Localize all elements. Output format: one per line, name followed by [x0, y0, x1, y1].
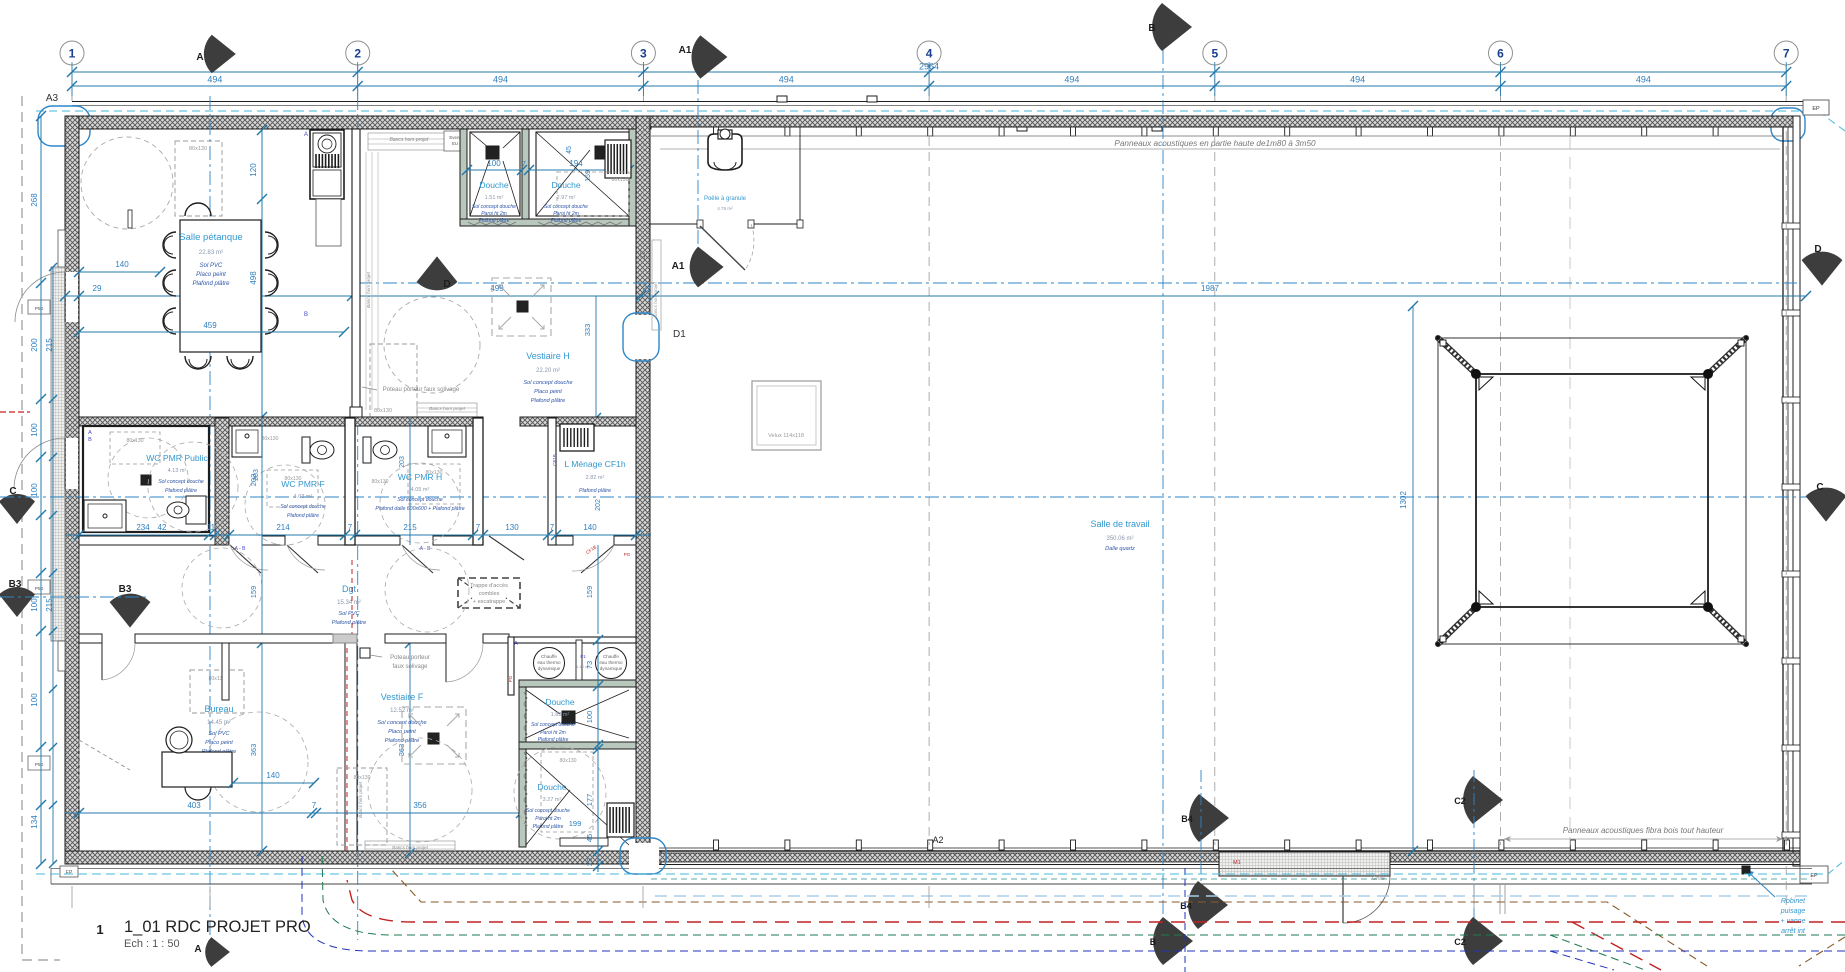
svg-text:puisage: puisage [1780, 908, 1806, 915]
svg-text:134: 134 [30, 815, 39, 829]
svg-text:EU: EU [452, 141, 458, 146]
svg-text:494: 494 [1064, 75, 1079, 85]
svg-text:Bancs hors projet: Bancs hors projet [653, 281, 658, 317]
svg-text:2.82 m²: 2.82 m² [586, 475, 605, 481]
svg-text:Poêle à granule: Poêle à granule [704, 196, 747, 202]
svg-text:45: 45 [566, 146, 573, 154]
svg-text:350.06 m²: 350.06 m² [1106, 536, 1133, 542]
svg-text:arrêt int: arrêt int [1781, 928, 1806, 935]
svg-text:3: 3 [640, 47, 647, 61]
svg-text:Douche: Douche [479, 180, 509, 190]
svg-text:1.51 m²: 1.51 m² [485, 195, 504, 201]
svg-text:EP: EP [66, 870, 73, 876]
svg-text:Chauffe: Chauffe [541, 654, 557, 659]
svg-text:494: 494 [1636, 75, 1651, 85]
svg-text:Douche: Douche [551, 180, 581, 190]
svg-text:Sol concept douche: Sol concept douche [158, 479, 204, 485]
svg-text:Plafond plâtre: Plafond plâtre [192, 281, 230, 287]
svg-text:1_01 RDC PROJET PRO: 1_01 RDC PROJET PRO [124, 918, 311, 936]
svg-text:Vestiaire H: Vestiaire H [526, 351, 570, 361]
svg-text:80x130: 80x130 [371, 479, 388, 485]
svg-text:CF1B: CF1B [552, 454, 557, 466]
svg-text:A - B: A - B [235, 546, 247, 552]
svg-text:7: 7 [312, 801, 317, 810]
svg-text:177: 177 [585, 794, 594, 807]
svg-text:Chauffe: Chauffe [603, 654, 619, 659]
svg-text:Plafond plâtre: Plafond plâtre [332, 620, 367, 626]
svg-text:A: A [88, 430, 92, 436]
svg-text:F1: F1 [580, 654, 586, 659]
svg-text:A: A [196, 52, 203, 63]
svg-text:80x130: 80x130 [374, 408, 392, 414]
svg-text:+ escatrappe: + escatrappe [473, 599, 506, 605]
svg-text:A: A [514, 641, 518, 647]
svg-text:EP: EP [1812, 106, 1820, 112]
svg-text:494: 494 [493, 75, 508, 85]
svg-text:356: 356 [413, 801, 427, 810]
svg-text:7: 7 [1783, 47, 1790, 61]
svg-text:Douche: Douche [545, 697, 575, 707]
svg-text:5: 5 [1211, 47, 1218, 61]
svg-text:4.76 m²: 4.76 m² [717, 206, 733, 211]
svg-text:140: 140 [115, 260, 129, 269]
svg-text:P50: P50 [35, 586, 44, 592]
svg-text:Placo peint: Placo peint [205, 740, 233, 746]
svg-text:498: 498 [249, 271, 258, 285]
svg-text:6: 6 [1497, 47, 1504, 61]
svg-text:29: 29 [93, 284, 102, 293]
svg-text:Sol PVC: Sol PVC [200, 263, 223, 269]
svg-text:4.05 m²: 4.05 m² [411, 487, 430, 493]
svg-text:130: 130 [505, 523, 519, 532]
svg-text:WC PMR Public: WC PMR Public [146, 453, 208, 463]
svg-text:D: D [443, 279, 450, 290]
svg-text:B: B [88, 437, 92, 443]
svg-text:PG: PG [624, 552, 631, 557]
svg-text:L Ménage CF1h: L Ménage CF1h [564, 459, 626, 469]
svg-text:140: 140 [583, 523, 597, 532]
svg-text:4.03 m²: 4.03 m² [294, 494, 313, 500]
svg-text:73: 73 [585, 661, 594, 669]
svg-text:P50: P50 [35, 306, 44, 312]
svg-text:363: 363 [249, 744, 258, 757]
svg-text:7: 7 [550, 523, 555, 532]
svg-text:Poteau porteur: Poteau porteur [390, 655, 430, 661]
svg-text:dynamique: dynamique [600, 666, 623, 671]
svg-text:194: 194 [569, 159, 583, 168]
svg-text:Sol concept douche: Sol concept douche [472, 204, 516, 210]
svg-text:combles: combles [479, 591, 500, 597]
svg-text:Bancs hors projet: Bancs hors projet [390, 137, 430, 143]
svg-text:Sol PVC: Sol PVC [208, 731, 230, 737]
svg-text:45: 45 [585, 834, 594, 842]
svg-text:2: 2 [354, 47, 361, 61]
svg-text:200: 200 [30, 338, 39, 352]
svg-text:eau thermo: eau thermo [599, 660, 623, 665]
svg-text:3.27 m²: 3.27 m² [543, 797, 562, 803]
svg-text:Placo peint: Placo peint [196, 272, 226, 278]
svg-text:D: D [1814, 244, 1821, 255]
svg-text:2.97 m²: 2.97 m² [557, 195, 576, 201]
svg-text:80x130: 80x130 [261, 436, 278, 442]
svg-text:29: 29 [585, 858, 594, 866]
svg-text:Ech : 1 : 50: Ech : 1 : 50 [124, 938, 180, 950]
svg-text:Bancs hors projet: Bancs hors projet [358, 781, 363, 817]
svg-text:Bancs hors projet: Bancs hors projet [392, 845, 428, 850]
svg-text:100: 100 [30, 423, 39, 437]
svg-text:Plafond plâtre: Plafond plâtre [579, 488, 611, 494]
svg-text:Sol concept douche: Sol concept douche [523, 380, 572, 386]
svg-text:100: 100 [30, 598, 39, 612]
svg-text:80x130: 80x130 [353, 775, 370, 781]
svg-text:Bureau: Bureau [204, 704, 233, 714]
svg-text:22.20 m²: 22.20 m² [536, 368, 560, 374]
svg-text:C: C [9, 486, 16, 497]
svg-text:Sol concept douche: Sol concept douche [531, 722, 575, 728]
svg-text:eau thermo: eau thermo [537, 660, 561, 665]
svg-text:Trappe d'accès: Trappe d'accès [470, 583, 508, 589]
svg-text:Salle de travail: Salle de travail [1090, 519, 1149, 529]
svg-text:Dalle quartz: Dalle quartz [1105, 546, 1135, 552]
svg-text:7: 7 [476, 523, 481, 532]
svg-text:100: 100 [30, 693, 39, 707]
svg-text:P50: P50 [35, 762, 44, 768]
svg-text:80x130: 80x130 [611, 177, 628, 183]
svg-text:159: 159 [585, 586, 594, 599]
svg-text:Plafond plâtre: Plafond plâtre [531, 398, 566, 404]
svg-text:Plafond plâtre: Plafond plâtre [533, 824, 564, 830]
svg-text:Dgt: Dgt [342, 584, 357, 594]
svg-text:4: 4 [926, 47, 933, 61]
svg-text:Sol concept douche: Sol concept douche [526, 808, 570, 814]
svg-text:100: 100 [30, 483, 39, 497]
svg-text:22: 22 [643, 284, 652, 293]
svg-text:A: A [304, 132, 308, 138]
svg-text:403: 403 [187, 801, 201, 810]
svg-text:1: 1 [96, 922, 103, 937]
svg-text:C2: C2 [1454, 937, 1466, 947]
svg-text:faux solivage: faux solivage [392, 664, 428, 670]
svg-text:B: B [1148, 23, 1155, 34]
svg-text:B3: B3 [9, 579, 22, 590]
svg-text:80x130: 80x130 [425, 470, 442, 476]
svg-text:494: 494 [779, 75, 794, 85]
svg-text:459: 459 [203, 321, 217, 330]
svg-text:4.13 m²: 4.13 m² [168, 468, 187, 474]
svg-text:Douche: Douche [537, 782, 567, 792]
svg-text:Plafond plâtre: Plafond plâtre [538, 737, 569, 743]
svg-text:Sol PVC: Sol PVC [338, 611, 360, 617]
svg-text:Plafond plâtre: Plafond plâtre [165, 488, 197, 494]
svg-text:B: B [1150, 937, 1157, 947]
svg-text:Panneaux acoustiques en partie: Panneaux acoustiques en partie haute de1… [1114, 139, 1316, 148]
svg-text:C: C [1816, 482, 1823, 493]
svg-text:494: 494 [207, 75, 222, 85]
svg-text:A - B: A - B [420, 546, 432, 552]
svg-text:15: 15 [640, 251, 647, 259]
svg-text:1987: 1987 [1201, 284, 1219, 293]
svg-text:A2: A2 [932, 835, 943, 845]
svg-text:C2: C2 [1454, 796, 1466, 806]
svg-text:Sol concept douche: Sol concept douche [544, 204, 588, 210]
svg-text:B3: B3 [119, 584, 132, 595]
svg-text:234: 234 [136, 523, 150, 532]
svg-text:80x130: 80x130 [559, 758, 576, 764]
svg-text:Poteau porteur faux solivage: Poteau porteur faux solivage [383, 387, 460, 393]
svg-text:Panneaux acoustiques fibra boi: Panneaux acoustiques fibra bois tout hau… [1563, 826, 1724, 835]
svg-text:80x130: 80x130 [284, 476, 301, 482]
svg-text:100: 100 [585, 711, 594, 724]
svg-text:203: 203 [249, 474, 258, 487]
svg-text:B4: B4 [1181, 814, 1193, 824]
svg-text:199: 199 [569, 819, 582, 828]
svg-text:A: A [194, 944, 201, 955]
svg-text:M1: M1 [1233, 860, 1241, 866]
svg-text:494: 494 [1350, 75, 1365, 85]
svg-text:333: 333 [583, 324, 592, 337]
svg-text:Paroi ht 2m: Paroi ht 2m [481, 211, 507, 217]
svg-text:202: 202 [595, 499, 602, 511]
svg-text:100: 100 [487, 159, 501, 168]
svg-text:Plafond dalle 600x600 + Plafon: Plafond dalle 600x600 + Plafond plâtre [375, 506, 464, 512]
svg-text:Vestiaire F: Vestiaire F [381, 692, 424, 702]
svg-text:D1: D1 [673, 329, 686, 340]
svg-text:203: 203 [399, 456, 406, 468]
svg-text:214: 214 [276, 523, 290, 532]
svg-text:A3: A3 [46, 93, 59, 104]
svg-text:Plafond plâtre: Plafond plâtre [287, 513, 319, 519]
svg-text:7: 7 [522, 161, 526, 168]
svg-text:PG: PG [508, 675, 513, 682]
svg-text:Bancs hors projet: Bancs hors projet [366, 271, 371, 307]
svg-text:15.34 m²: 15.34 m² [337, 600, 361, 606]
svg-text:140: 140 [266, 771, 280, 780]
svg-text:Velux 114x118: Velux 114x118 [768, 433, 804, 439]
svg-text:Robinet: Robinet [1781, 898, 1806, 905]
svg-text:Sol concept douche: Sol concept douche [280, 504, 326, 510]
svg-text:22.83 m²: 22.83 m² [199, 249, 223, 256]
svg-text:dynamique: dynamique [538, 666, 561, 671]
svg-text:1.83 m²: 1.83 m² [551, 712, 570, 718]
svg-text:11,: 11, [207, 523, 218, 532]
svg-text:Placo peint: Placo peint [534, 389, 562, 395]
svg-text:Bancs hors projet: Bancs hors projet [429, 406, 465, 411]
svg-text:80x130: 80x130 [189, 146, 207, 152]
svg-text:120: 120 [249, 163, 258, 177]
svg-text:42: 42 [158, 523, 167, 532]
svg-text:1: 1 [69, 47, 76, 61]
svg-text:Sol concept douche: Sol concept douche [397, 497, 443, 503]
svg-text:159: 159 [249, 586, 258, 599]
svg-text:A1: A1 [672, 261, 685, 272]
svg-text:1302: 1302 [1399, 491, 1408, 509]
svg-text:268: 268 [30, 193, 39, 207]
svg-text:B: B [304, 312, 308, 318]
svg-text:Paroi ht 2m: Paroi ht 2m [540, 730, 566, 736]
svg-text:A1: A1 [679, 45, 692, 56]
svg-text:Salle pétanque: Salle pétanque [179, 232, 242, 243]
svg-text:7: 7 [348, 523, 353, 532]
